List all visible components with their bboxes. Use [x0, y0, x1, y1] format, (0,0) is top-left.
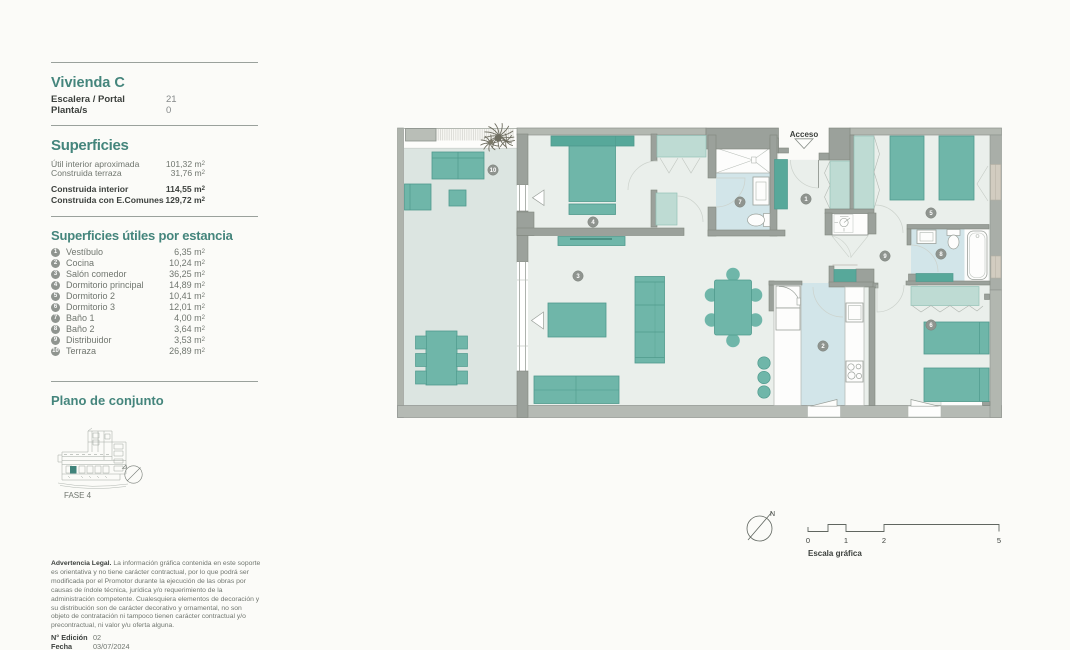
- svg-text:2: 2: [882, 536, 886, 545]
- svg-text:10: 10: [490, 168, 497, 174]
- svg-text:1: 1: [844, 536, 848, 545]
- svg-text:N: N: [770, 511, 775, 518]
- svg-text:5: 5: [997, 536, 1001, 545]
- svg-text:Escala gráfica: Escala gráfica: [808, 549, 862, 558]
- svg-text:0: 0: [806, 536, 810, 545]
- svg-text:Acceso: Acceso: [790, 130, 819, 139]
